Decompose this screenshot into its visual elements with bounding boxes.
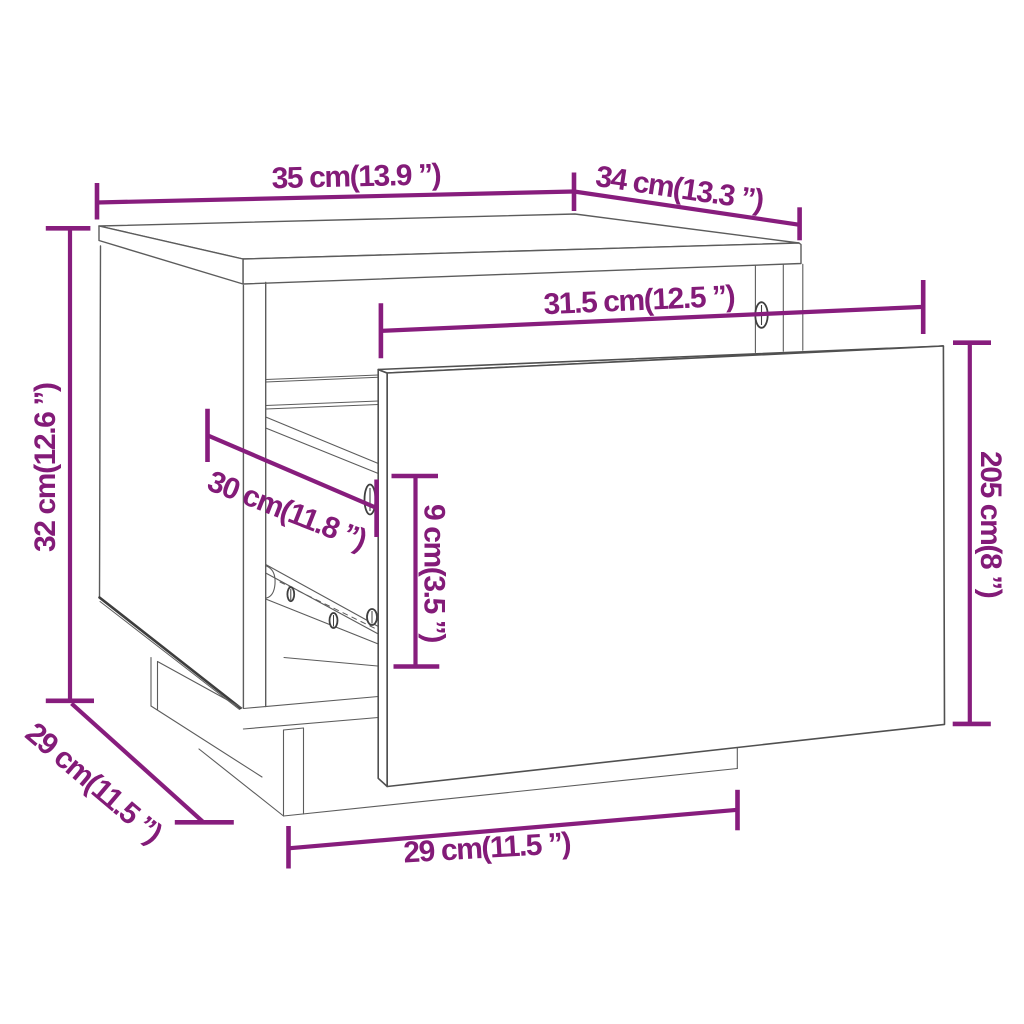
svg-text:9 cm(3.5 ”): 9 cm(3.5 ”) — [418, 504, 451, 642]
svg-text:32 cm(12.6 ”): 32 cm(12.6 ”) — [29, 383, 62, 552]
svg-text:35 cm(13.9 ”): 35 cm(13.9 ”) — [271, 158, 441, 195]
svg-text:205 cm(8 ”): 205 cm(8 ”) — [974, 451, 1007, 598]
